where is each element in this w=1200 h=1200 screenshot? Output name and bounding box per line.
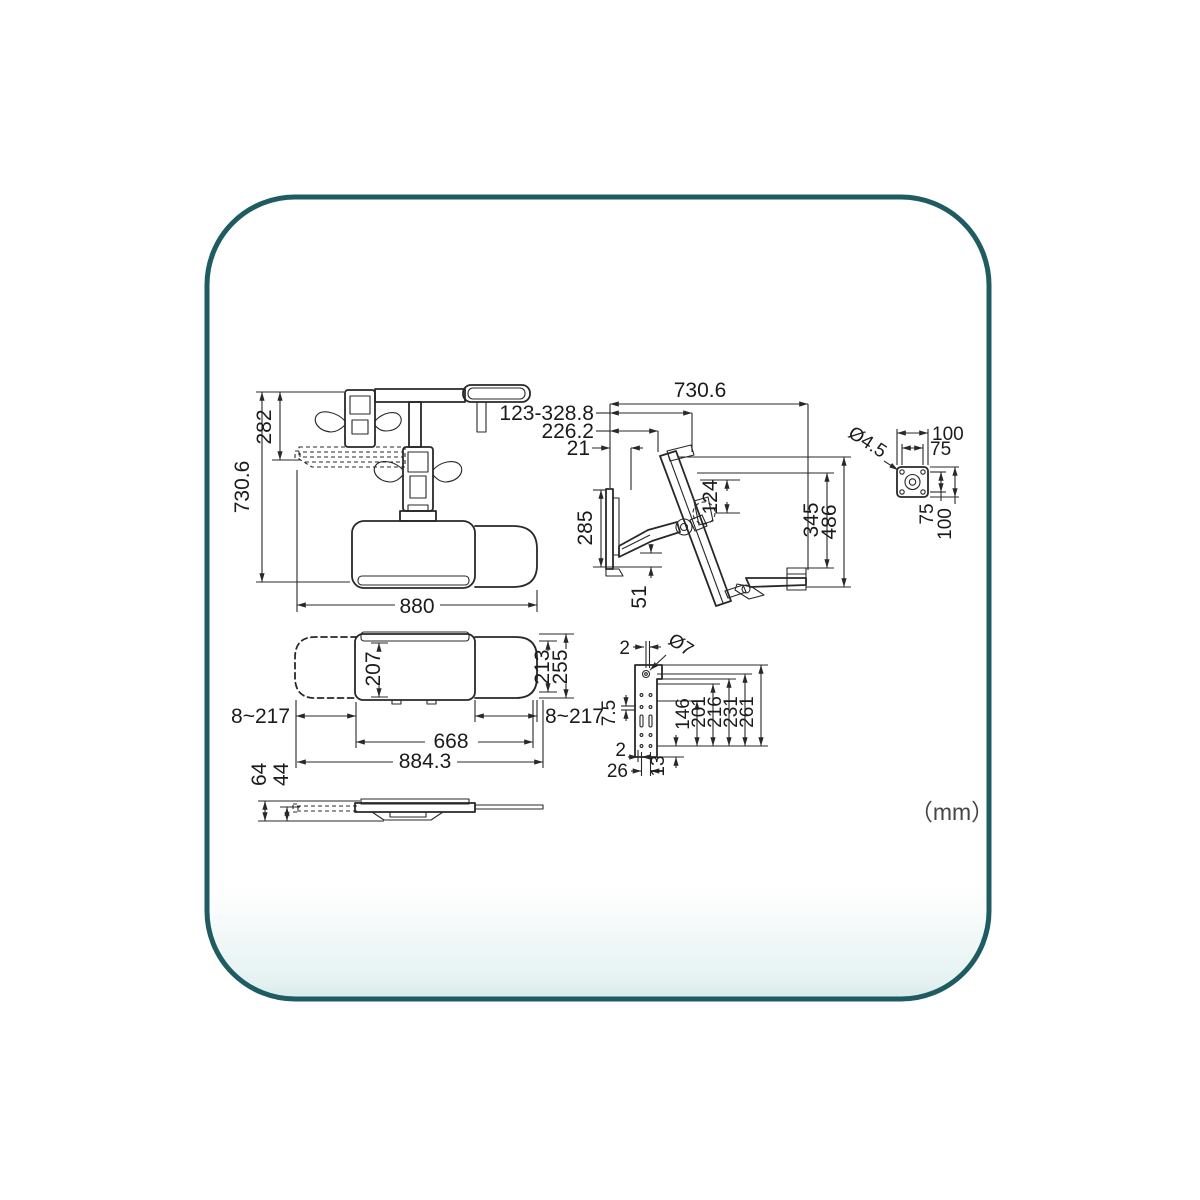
frame-border bbox=[207, 197, 989, 999]
dimension-diagram: 282 730.6 880 bbox=[0, 0, 1200, 1200]
dim-44: 44 bbox=[270, 762, 293, 786]
dim-7-5: 7.5 bbox=[599, 700, 620, 726]
dim-486: 486 bbox=[818, 504, 841, 539]
dim-884-3: 884.3 bbox=[399, 750, 452, 773]
dim-207: 207 bbox=[362, 651, 385, 686]
dim-13: 13 bbox=[648, 755, 669, 776]
dim-261: 261 bbox=[737, 696, 758, 728]
dim-255: 255 bbox=[549, 649, 572, 684]
dim-vesa-100-right: 100 bbox=[935, 508, 956, 540]
dim-21: 21 bbox=[567, 437, 590, 460]
dim-124: 124 bbox=[699, 479, 722, 514]
dim-8-217-left: 8~217 bbox=[231, 705, 290, 728]
dim-vesa-75-top: 75 bbox=[930, 439, 951, 460]
dim-2-bottom: 2 bbox=[615, 740, 626, 761]
dim-51: 51 bbox=[628, 585, 651, 608]
diagram-page: 282 730.6 880 bbox=[0, 0, 1200, 1200]
dim-64: 64 bbox=[248, 762, 271, 786]
dim-26: 26 bbox=[607, 761, 628, 782]
dim-282: 282 bbox=[253, 409, 276, 444]
dim-880: 880 bbox=[399, 595, 434, 618]
dim-2-top: 2 bbox=[619, 638, 630, 659]
dim-730-6-side: 730.6 bbox=[674, 379, 727, 402]
dim-285: 285 bbox=[574, 510, 597, 545]
dim-8-217-right: 8~217 bbox=[545, 705, 604, 728]
units-label: （mm） bbox=[910, 799, 994, 825]
dim-730-6-top: 730.6 bbox=[231, 461, 254, 514]
